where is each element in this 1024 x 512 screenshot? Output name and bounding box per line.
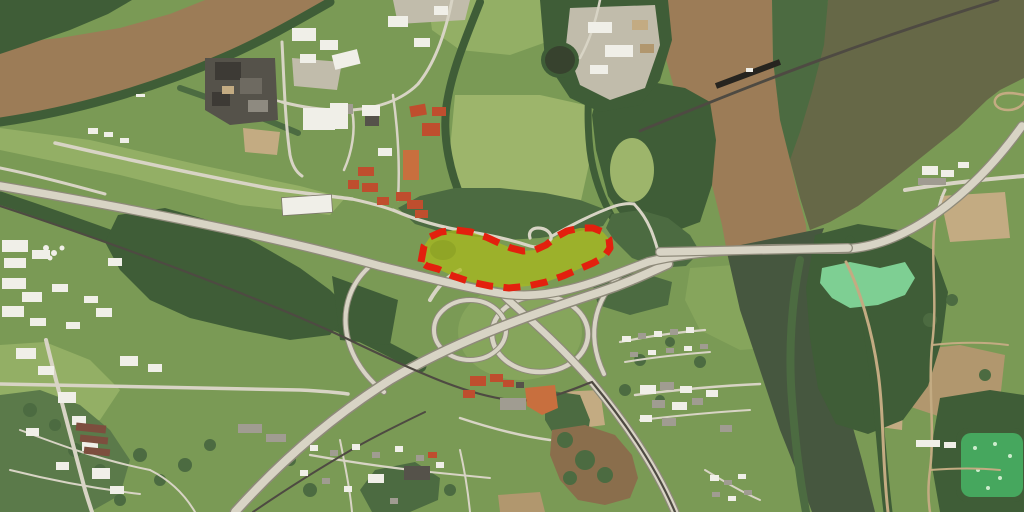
barge-on-bridge xyxy=(746,68,753,72)
highway-river-bridge xyxy=(660,248,848,252)
barge xyxy=(136,94,145,97)
aerial-map-image xyxy=(0,0,1024,512)
satellite-map-canvas xyxy=(0,0,1024,512)
factory-complex xyxy=(205,58,278,125)
treatment-pond xyxy=(961,433,1023,497)
